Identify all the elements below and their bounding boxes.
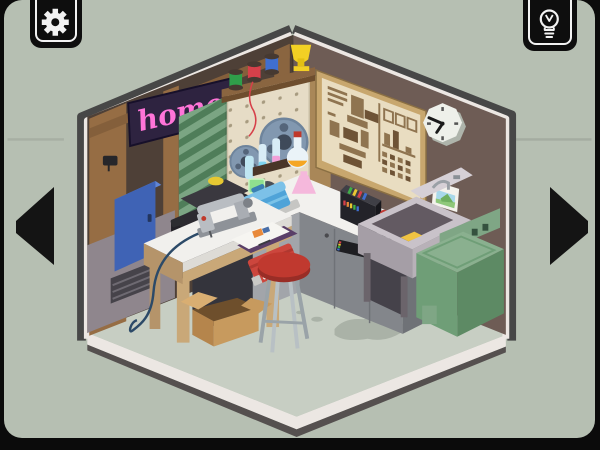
door-handle (325, 233, 329, 237)
sink-leg (364, 253, 371, 302)
hint-button[interactable] (523, 0, 577, 51)
lightbulb-icon (531, 4, 567, 44)
gear-icon (37, 4, 73, 40)
stool-seat (258, 252, 311, 277)
backdrop-seam-right (510, 138, 592, 140)
isometric-room: home (4, 0, 595, 438)
washer-access-panel (422, 306, 437, 324)
yellow-trophy[interactable] (291, 45, 311, 71)
desk-leg (177, 278, 190, 342)
sink-leg (401, 276, 408, 317)
cabinet-handle (148, 214, 152, 222)
backdrop-seam-left (8, 138, 64, 140)
settings-button[interactable] (30, 0, 82, 48)
scene-background: home (4, 0, 595, 438)
